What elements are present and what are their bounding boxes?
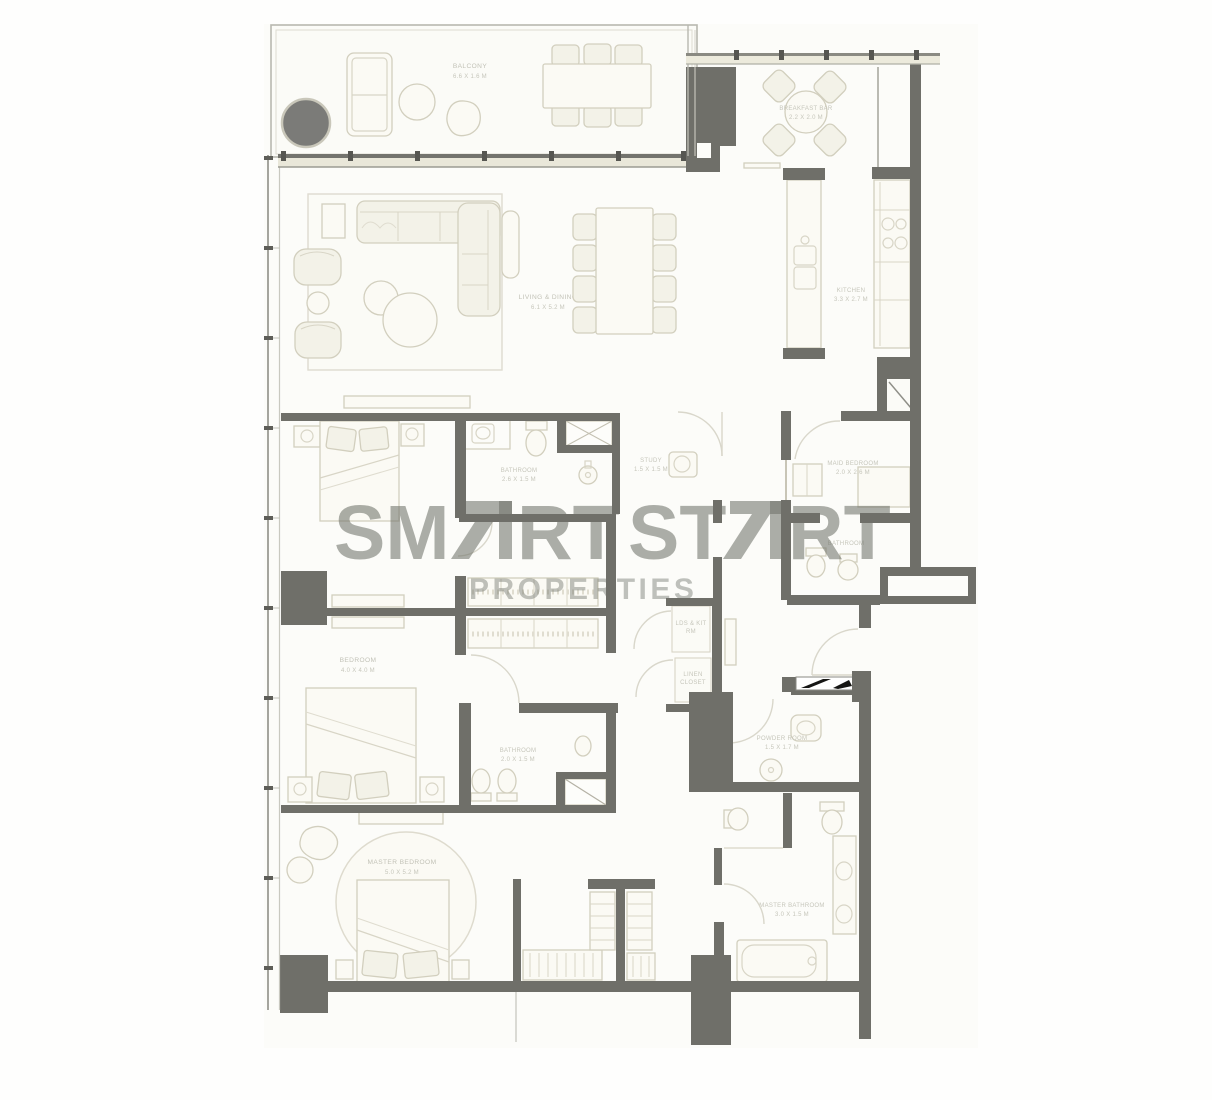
- svg-text:MAID BEDROOM: MAID BEDROOM: [827, 461, 878, 467]
- svg-text:2.0 X 2.6 M: 2.0 X 2.6 M: [836, 470, 870, 476]
- svg-text:LINEN: LINEN: [683, 672, 702, 678]
- svg-text:2.2 X 2.0 M: 2.2 X 2.0 M: [789, 115, 823, 121]
- svg-text:2.6 X 1.5 M: 2.6 X 1.5 M: [502, 477, 536, 483]
- svg-text:BREAKFAST BAR: BREAKFAST BAR: [779, 106, 833, 112]
- svg-text:6.6 X 1.6 M: 6.6 X 1.6 M: [453, 74, 487, 80]
- svg-text:1.5 X 1.7 M: 1.5 X 1.7 M: [765, 745, 799, 751]
- svg-text:STUDY: STUDY: [640, 458, 662, 464]
- svg-text:CLOSET: CLOSET: [680, 680, 706, 686]
- svg-text:MASTER BEDROOM: MASTER BEDROOM: [368, 859, 437, 866]
- svg-text:ST: ST: [628, 490, 726, 576]
- svg-text:RM: RM: [686, 629, 696, 635]
- svg-text:BATHROOM: BATHROOM: [500, 748, 537, 754]
- svg-text:KITCHEN: KITCHEN: [837, 288, 865, 294]
- svg-text:6.1 X 5.2 M: 6.1 X 5.2 M: [531, 305, 565, 311]
- svg-text:3.3 X 2.7 M: 3.3 X 2.7 M: [834, 297, 868, 303]
- svg-text:2.0 X 1.5 M: 2.0 X 1.5 M: [501, 757, 535, 763]
- svg-text:3.0 X 1.5 M: 3.0 X 1.5 M: [775, 912, 809, 918]
- svg-text:BALCONY: BALCONY: [453, 63, 488, 70]
- svg-text:LIVING & DINING: LIVING & DINING: [519, 294, 578, 301]
- svg-text:SM: SM: [334, 490, 450, 576]
- svg-text:POWDER ROOM: POWDER ROOM: [757, 736, 808, 742]
- svg-text:5.0 X 5.2 M: 5.0 X 5.2 M: [385, 870, 419, 876]
- svg-text:LDS & KIT: LDS & KIT: [675, 621, 706, 627]
- svg-text:MASTER BATHROOM: MASTER BATHROOM: [759, 903, 824, 909]
- svg-text:1.5 X 1.5 M: 1.5 X 1.5 M: [634, 467, 668, 473]
- svg-text:PROPERTIES: PROPERTIES: [469, 573, 697, 606]
- svg-text:4.0 X 4.0 M: 4.0 X 4.0 M: [341, 668, 375, 674]
- svg-text:RT: RT: [788, 490, 891, 576]
- svg-text:RT: RT: [517, 490, 620, 576]
- svg-text:BEDROOM: BEDROOM: [340, 657, 377, 664]
- svg-text:BATHROOM: BATHROOM: [501, 468, 538, 474]
